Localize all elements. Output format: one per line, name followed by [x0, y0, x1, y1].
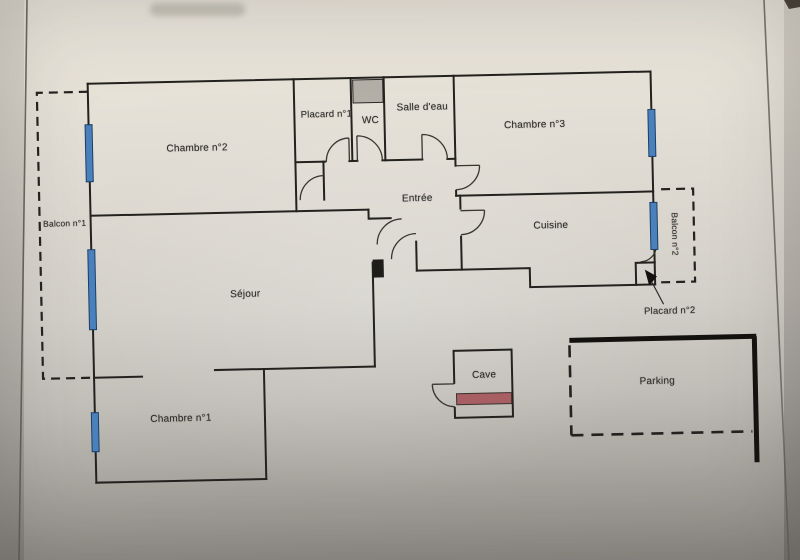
room-label-placard2: Placard n°2 [644, 305, 696, 317]
door-placard1 [326, 138, 349, 161]
door-sejour-leaf2 [391, 234, 417, 260]
parking-dashed-left [569, 345, 571, 435]
wall-chambre1-bottom [96, 479, 266, 483]
room-label-chambre3: Chambre n°3 [504, 119, 565, 131]
room-label-salledeau: Salle d'eau [396, 101, 448, 113]
window-sejour-icon [88, 250, 97, 330]
window-chambre1-icon [91, 413, 99, 452]
wall-service-rooms-bottom [295, 159, 455, 162]
wall-chambre1-top [94, 377, 142, 378]
wall-chambre2-right [294, 79, 297, 211]
cave-walls [454, 350, 513, 418]
wall-cuisine-bottom [417, 265, 655, 289]
wall-entree-nook [323, 162, 324, 200]
wall-entree-south-left [416, 242, 417, 271]
window-chambre3-icon [648, 109, 656, 156]
floor-plan-linework [0, 0, 800, 560]
wall-chambre2-bottom [91, 210, 369, 216]
door-salledeau [422, 134, 448, 160]
room-label-entree: Entrée [402, 193, 433, 205]
room-label-cave: Cave [472, 369, 496, 381]
photo-of-floor-plan: Chambre n°2 Placard n°1 WC Salle d'eau C… [0, 0, 800, 560]
room-label-chambre1: Chambre n°1 [150, 413, 211, 425]
room-label-balcon2: Balcon n°2 [670, 212, 681, 255]
room-label-parking: Parking [640, 376, 676, 388]
parking-dashed-bottom [571, 431, 752, 435]
sejour-entrance-notch [373, 259, 384, 277]
window-chambre2-icon [85, 125, 93, 182]
door-cave [432, 384, 454, 407]
room-label-chambre2: Chambre n°2 [166, 142, 227, 154]
door-wc [357, 135, 383, 161]
wall-sejour-bottom [215, 367, 375, 370]
room-label-wc: WC [362, 115, 379, 126]
room-label-balcon1: Balcon n°1 [43, 218, 86, 229]
wall-cuisine-left [460, 196, 462, 270]
room-label-cuisine: Cuisine [533, 220, 568, 232]
parking-box [569, 336, 759, 466]
room-label-placard1: Placard n°1 [301, 109, 353, 121]
wall-chambre1-right [264, 369, 266, 479]
cave-pink-bar [456, 393, 511, 405]
wall-sejour-right [373, 263, 375, 367]
wall-chambre3-bottom [456, 191, 653, 195]
parking-wall-right [754, 336, 757, 462]
window-cuisine-icon [650, 202, 658, 249]
shaft-gray-block [353, 79, 383, 103]
door-chambre3 [456, 165, 481, 190]
parking-wall-top [569, 336, 756, 340]
wall-wc-right [384, 77, 386, 160]
wall-salledeau-right [454, 76, 457, 196]
door-chambre2 [300, 176, 325, 201]
room-label-sejour: Séjour [230, 289, 260, 301]
cave-box [454, 350, 513, 418]
door-cuisine [461, 210, 486, 235]
wall-entree-step [368, 209, 390, 218]
placard2-leader-line [652, 282, 663, 304]
floor-plan: Chambre n°2 Placard n°1 WC Salle d'eau C… [0, 0, 800, 560]
